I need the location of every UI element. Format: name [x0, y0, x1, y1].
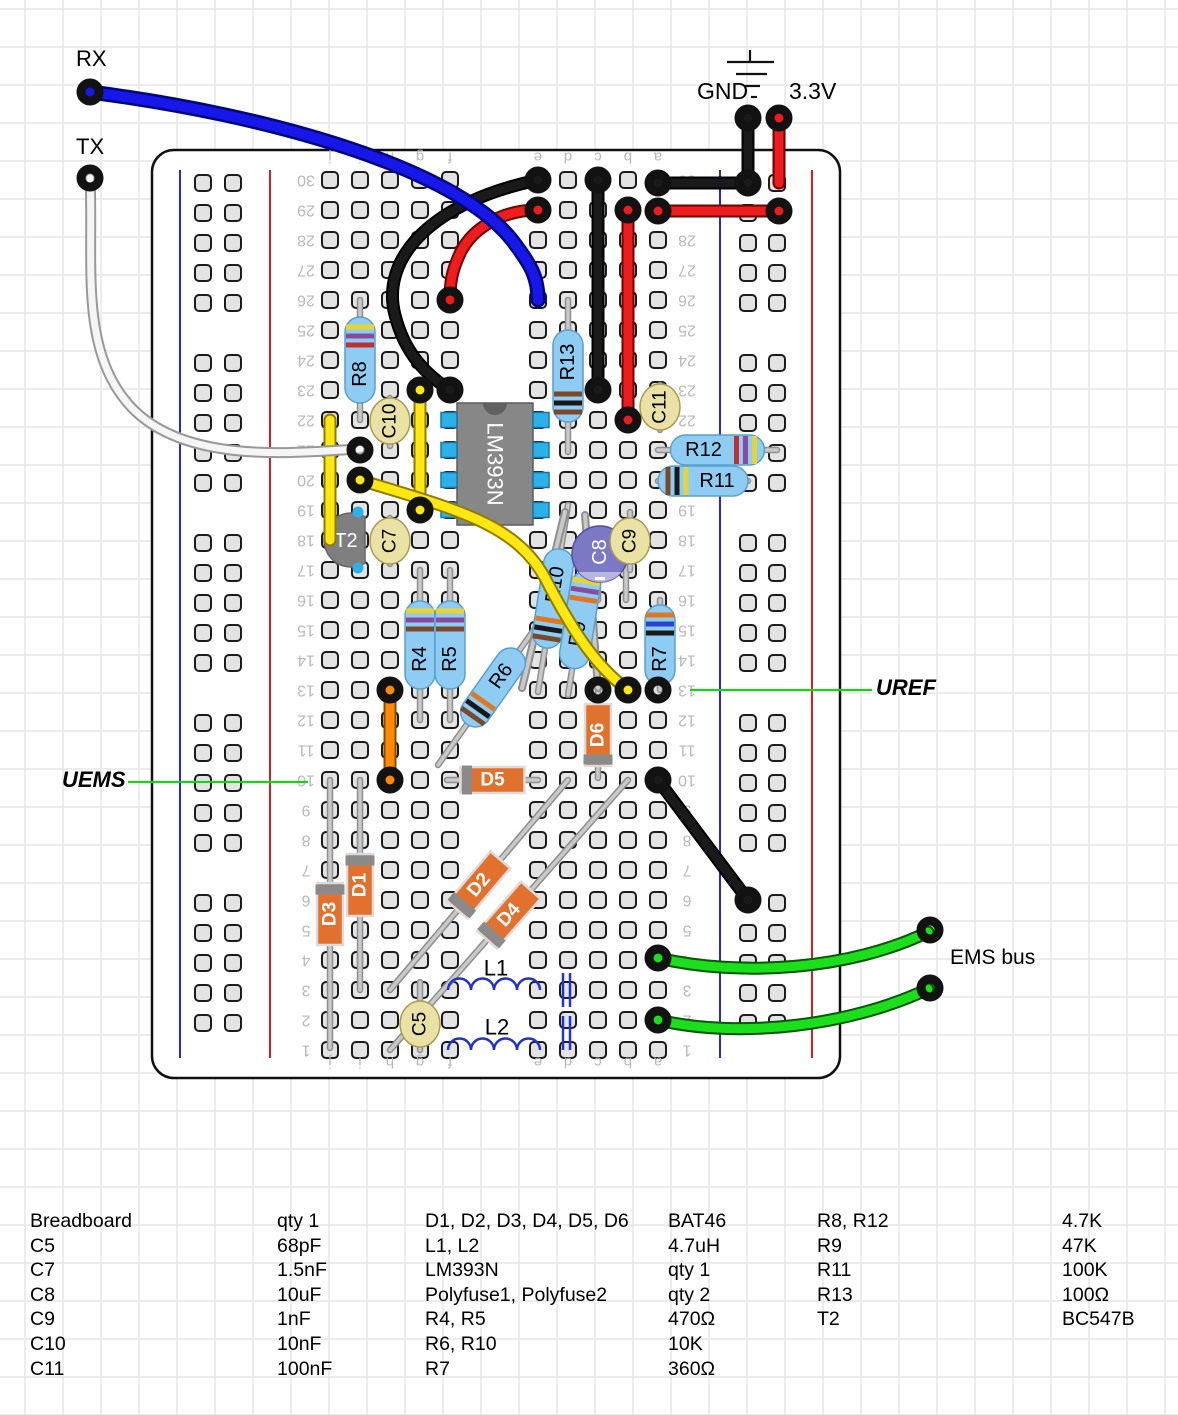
parts-value: qty 2	[668, 1283, 710, 1308]
parts-name: T2	[817, 1307, 840, 1332]
component-r7: R7	[645, 605, 675, 685]
svg-text:15: 15	[678, 622, 696, 639]
svg-text:18: 18	[297, 532, 315, 549]
component-d6: D6	[584, 704, 613, 766]
parts-name: R4, R5	[425, 1307, 486, 1332]
parts-name: R11	[817, 1258, 851, 1283]
component-r11: R11	[658, 466, 748, 496]
parts-value: 68pF	[277, 1234, 321, 1259]
svg-text:22: 22	[678, 412, 696, 429]
svg-text:17: 17	[297, 562, 315, 579]
svg-text:28: 28	[678, 232, 696, 249]
parts-value: qty 1	[277, 1209, 319, 1234]
svg-text:26: 26	[678, 292, 696, 309]
svg-text:D5: D5	[480, 770, 505, 791]
svg-text:24: 24	[678, 352, 696, 369]
svg-text:R7: R7	[649, 646, 671, 672]
svg-text:R8: R8	[349, 361, 371, 387]
svg-text:D3: D3	[320, 902, 341, 926]
parts-name: D1, D2, D3, D4, D5, D6	[425, 1209, 629, 1234]
svg-text:3: 3	[682, 982, 691, 999]
svg-text:30: 30	[297, 172, 315, 189]
parts-name: L1, L2	[425, 1234, 479, 1259]
rx-label: RX	[76, 46, 107, 72]
svg-text:23: 23	[678, 382, 696, 399]
parts-value: BAT46	[668, 1209, 726, 1234]
parts-name: C11	[30, 1357, 64, 1382]
svg-text:i: i	[358, 1054, 361, 1071]
parts-name: R7	[425, 1357, 450, 1382]
svg-text:R13: R13	[557, 344, 579, 381]
svg-text:h: h	[386, 1054, 394, 1071]
svg-text:R12: R12	[685, 439, 722, 461]
svg-text:6: 6	[682, 892, 691, 909]
parts-value: 1.5nF	[277, 1258, 327, 1283]
parts-name: LM393N	[425, 1258, 499, 1283]
svg-text:27: 27	[678, 262, 696, 279]
svg-text:d: d	[564, 1054, 572, 1071]
svg-text:15: 15	[297, 622, 315, 639]
parts-value: 360Ω	[668, 1357, 715, 1382]
parts-value: 10nF	[277, 1332, 321, 1357]
tx-label: TX	[76, 134, 104, 160]
svg-text:25: 25	[678, 322, 696, 339]
svg-text:12: 12	[678, 712, 696, 729]
svg-text:24: 24	[297, 352, 315, 369]
svg-text:T2: T2	[334, 530, 357, 552]
component-c11: C11	[640, 384, 680, 430]
gnd-label: GND	[697, 78, 748, 105]
svg-text:5: 5	[682, 922, 691, 939]
svg-text:g: g	[416, 1054, 424, 1071]
svg-text:1: 1	[301, 1042, 310, 1059]
component-c10: C10	[370, 398, 410, 444]
svg-text:c: c	[594, 1054, 602, 1071]
svg-text:8: 8	[301, 832, 310, 849]
svg-text:7: 7	[682, 862, 691, 879]
svg-text:25: 25	[297, 322, 315, 339]
svg-text:LM393N: LM393N	[483, 422, 508, 505]
svg-text:28: 28	[297, 232, 315, 249]
svg-text:C10: C10	[380, 404, 401, 439]
parts-value: 100nF	[277, 1357, 332, 1382]
svg-text:12: 12	[297, 712, 315, 729]
svg-text:R11: R11	[699, 470, 734, 492]
component-r12: R12	[671, 435, 765, 465]
parts-name: C9	[30, 1307, 55, 1332]
parts-value: 10uF	[277, 1283, 321, 1308]
svg-text:C11: C11	[650, 390, 671, 423]
3v3-label: 3.3V	[789, 78, 836, 105]
parts-name: R8, R12	[817, 1209, 889, 1234]
component-c5: C5	[400, 1001, 440, 1047]
svg-text:R4: R4	[409, 646, 431, 672]
component-r13: R13	[553, 330, 583, 422]
svg-text:19: 19	[297, 502, 315, 519]
svg-text:C8: C8	[589, 539, 611, 565]
component-r8: R8	[345, 317, 375, 403]
parts-name: C5	[30, 1234, 55, 1259]
ems-bus-label: EMS bus	[950, 946, 1035, 970]
svg-text:a: a	[653, 1054, 662, 1071]
svg-text:g: g	[416, 149, 424, 166]
component-d5: D5	[461, 766, 525, 795]
svg-text:j: j	[328, 1054, 332, 1071]
svg-text:20: 20	[297, 472, 315, 489]
svg-text:C9: C9	[620, 529, 641, 553]
svg-text:2: 2	[301, 1012, 310, 1029]
parts-value: 47K	[1062, 1234, 1097, 1259]
uems-label: UEMS	[62, 767, 126, 793]
svg-text:L2: L2	[485, 1015, 509, 1040]
svg-text:3: 3	[301, 982, 310, 999]
component-c7: C7	[370, 518, 410, 564]
svg-text:27: 27	[297, 262, 315, 279]
breadboard-circuit-diagram: 1122334455667788991010111112121313141415…	[0, 0, 1178, 1415]
svg-text:D6: D6	[588, 723, 609, 747]
parts-value: 4.7K	[1062, 1209, 1102, 1234]
svg-text:e: e	[534, 1054, 542, 1071]
parts-value: BC547B	[1062, 1307, 1135, 1332]
parts-value: qty 1	[668, 1258, 710, 1283]
parts-value: 10K	[668, 1332, 703, 1357]
parts-name: R13	[817, 1283, 853, 1308]
svg-text:14: 14	[297, 652, 315, 669]
svg-text:D1: D1	[350, 872, 371, 897]
svg-text:j: j	[328, 149, 332, 166]
svg-text:d: d	[564, 149, 572, 166]
svg-text:b: b	[624, 1054, 632, 1071]
component-r5: R5	[435, 601, 465, 689]
svg-text:8: 8	[682, 832, 691, 849]
svg-text:13: 13	[297, 682, 315, 699]
svg-text:18: 18	[678, 532, 696, 549]
component-d3: D3	[316, 883, 345, 945]
uref-label: UREF	[876, 675, 936, 701]
svg-text:17: 17	[678, 562, 696, 579]
svg-text:C5: C5	[410, 1012, 431, 1036]
component-c9: C9	[610, 518, 650, 564]
svg-text:29: 29	[297, 202, 315, 219]
parts-value: 100K	[1062, 1258, 1108, 1283]
svg-text:23: 23	[297, 382, 315, 399]
svg-text:10: 10	[678, 772, 696, 789]
parts-name: C8	[30, 1283, 55, 1308]
svg-text:10: 10	[297, 772, 315, 789]
svg-text:5: 5	[301, 922, 310, 939]
svg-text:C7: C7	[380, 529, 401, 553]
svg-text:4: 4	[301, 952, 310, 969]
component-d1: D1	[346, 854, 375, 916]
svg-text:11: 11	[679, 742, 696, 759]
svg-text:19: 19	[678, 502, 696, 519]
parts-value: 470Ω	[668, 1307, 715, 1332]
parts-value: 4.7uH	[668, 1234, 720, 1259]
svg-text:7: 7	[301, 862, 310, 879]
component-r4: R4	[405, 601, 435, 689]
svg-text:9: 9	[301, 802, 310, 819]
parts-value: 100Ω	[1062, 1283, 1109, 1308]
parts-value: 1nF	[277, 1307, 311, 1332]
svg-text:b: b	[624, 149, 632, 166]
svg-text:L1: L1	[484, 956, 508, 981]
parts-name: R9	[817, 1234, 842, 1259]
parts-name: C10	[30, 1332, 66, 1357]
svg-text:e: e	[534, 149, 542, 166]
svg-text:a: a	[653, 149, 662, 166]
svg-text:16: 16	[678, 592, 696, 609]
svg-text:16: 16	[297, 592, 315, 609]
svg-text:1: 1	[682, 1042, 691, 1059]
parts-name: Polyfuse1, Polyfuse2	[425, 1283, 607, 1308]
svg-text:c: c	[594, 149, 602, 166]
svg-text:14: 14	[678, 652, 696, 669]
parts-name: C7	[30, 1258, 55, 1283]
breadboard-svg: 1122334455667788991010111112121313141415…	[0, 0, 1178, 1415]
svg-text:R5: R5	[439, 646, 461, 672]
svg-text:22: 22	[297, 412, 315, 429]
parts-name: R6, R10	[425, 1332, 497, 1357]
parts-name: Breadboard	[30, 1209, 132, 1234]
svg-text:11: 11	[298, 742, 315, 759]
svg-text:26: 26	[297, 292, 315, 309]
svg-text:6: 6	[301, 892, 310, 909]
